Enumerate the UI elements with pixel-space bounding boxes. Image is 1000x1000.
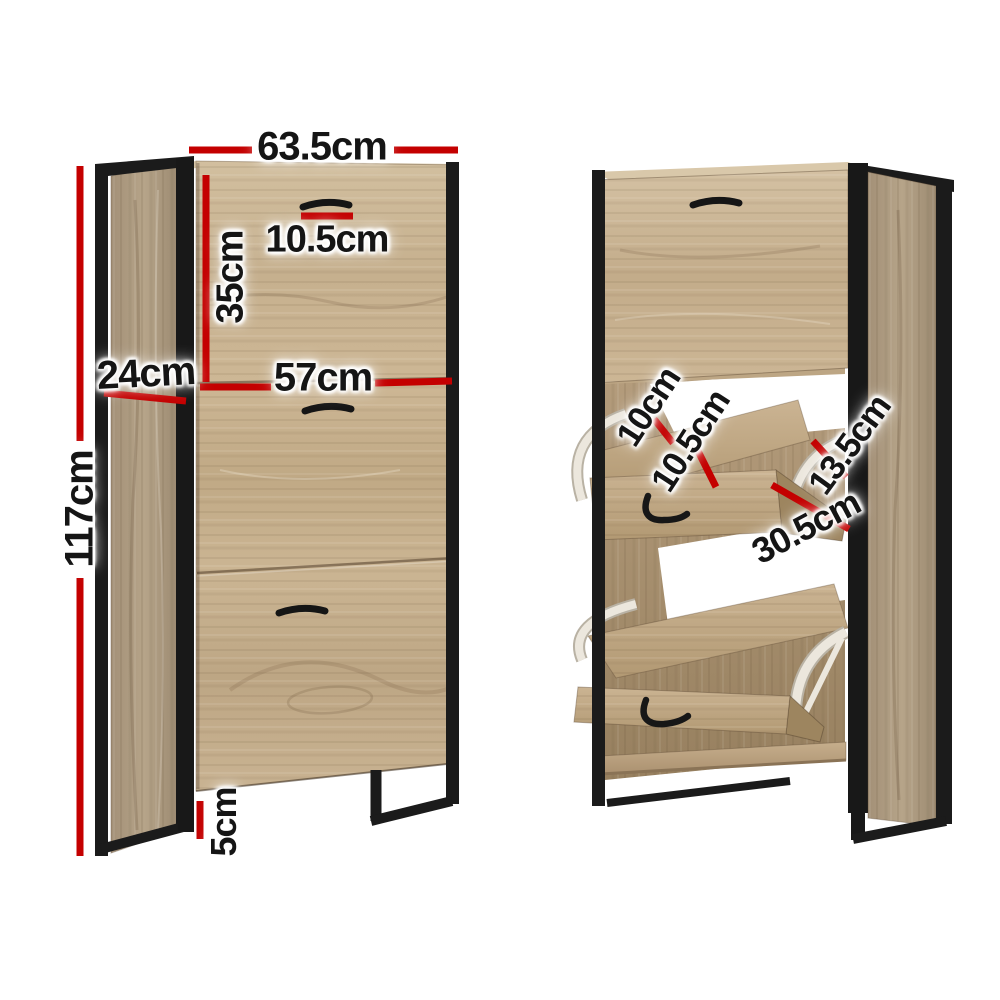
dim-label-width: 63.5cm [257,125,387,170]
dim-label-leg-height: 5cm [203,787,245,856]
dim-line-door-width-right [375,381,452,383]
side-panel-grain [111,163,178,853]
dim-label-height: 117cm [58,450,103,567]
frame-leg-rail-right [853,821,946,839]
dim-label-door-width: 57cm [274,356,372,401]
frame-leg-rail-right [371,801,452,821]
frame-front-left-post [592,170,605,806]
dim-label-depth: 24cm [96,349,197,399]
frame-rear-rail [607,781,790,803]
product-dimension-diagram: 63.5cm 10.5cm 35cm 24cm 57cm 117cm 5cm 1… [0,0,1000,1000]
dim-label-top-door-height: 35cm [210,230,253,323]
frame-rear-right-post [936,182,952,824]
side-panel-grain [868,172,936,826]
open-view-cabinet [574,162,954,840]
dim-label-handle-width: 10.5cm [266,219,389,262]
frame-front-right-post [446,162,459,804]
frame-front-left-post [176,158,194,832]
